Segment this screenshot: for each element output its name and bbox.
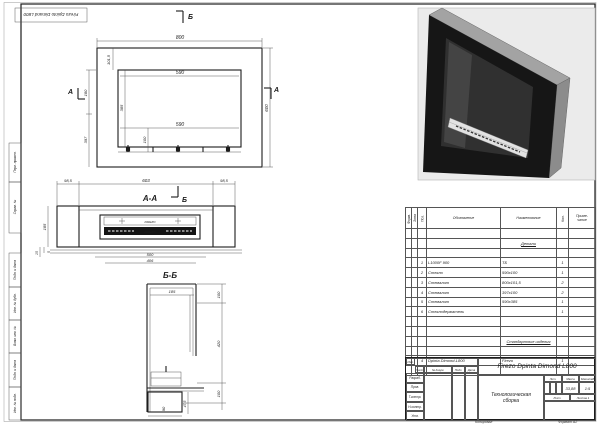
spec-header-note: Приме- чание [569, 208, 596, 229]
dim-406: 406 [147, 258, 154, 263]
format-label: Формат А2 [558, 420, 577, 424]
doc-title: Firezo Dpinta Dimond L800 [478, 358, 596, 375]
margin-label: Инв. № подл. [13, 393, 17, 413]
dim-15: 15 [35, 251, 39, 255]
spec-header-name: Наименование [501, 208, 557, 229]
rev-header-doc: № докум. [424, 366, 452, 373]
spec-table: Форм. Зона Поз. Обозначение Наименование… [405, 207, 596, 376]
dim-385: 385 [119, 104, 124, 111]
scale-value: 1:5 [579, 382, 596, 394]
margin-label: Справ. № [13, 199, 17, 214]
rev-header-sign: Подп. [452, 366, 465, 373]
section-bb: Б-Б 185 100 420 100 90 47,5 [147, 271, 226, 416]
sheets-cell: Листов 1 [570, 394, 596, 401]
section-aa-label: А-А [142, 194, 157, 203]
dim-397: 397 [83, 136, 88, 143]
spec-header-designation: Обозначение [427, 208, 501, 229]
spec-row: 1L1000F 900ТБ1 [406, 258, 596, 268]
dim-98-5-left: 98,5 [64, 178, 73, 183]
dim-180: 180 [83, 89, 88, 96]
margin-boxes: Перв. примен. Справ. № Подп. и дата Инв.… [9, 143, 21, 420]
scale-label: Масштаб [579, 375, 596, 382]
front-view: 800 101,5 590 590 600 180 397 385 100 Б … [67, 11, 279, 167]
rev-header-date: Дата [465, 366, 478, 373]
role-tkontr: Т.контр. [406, 392, 424, 402]
spec-section-details: Детали [406, 238, 596, 248]
section-aa-mark-b: Б [182, 197, 187, 204]
dim-185-aa: 185 [42, 223, 47, 230]
mass-label: Масса [562, 375, 579, 382]
dim-420: 420 [216, 340, 221, 347]
lit-label: Лит. [544, 375, 562, 382]
dim-600: 600 [264, 104, 269, 112]
dim-98-5-right: 98,5 [220, 178, 229, 183]
title-block: Изм. Лист № докум. Подп. Дата Разраб. Пр… [405, 357, 595, 420]
spec-header-format: Форм. [406, 208, 412, 229]
dim-185-bb: 185 [169, 289, 176, 294]
spec-row: 5Стемалит590х3851 [406, 297, 596, 307]
dim-100-top: 100 [216, 291, 221, 298]
spec-section-standard-label: Стандартные изделия [501, 336, 557, 346]
dim-800: 800 [176, 35, 185, 41]
section-mark-b: Б [188, 14, 193, 21]
spec-header-qty: Кол. [557, 208, 569, 229]
section-bb-label: Б-Б [163, 271, 177, 280]
role-nkontr: Н.контр. [406, 402, 424, 412]
spec-row: 6Стеклодержатель1 [406, 307, 596, 317]
spec-row: 2Стекло590х1001 [406, 268, 596, 278]
doc-subtitle: Технологическая сборка [478, 375, 544, 421]
section-mark-a-right: А [273, 87, 279, 94]
copied-label: Копировал [475, 420, 492, 424]
anchor-bolts [127, 145, 230, 152]
dim-101-5: 101,5 [106, 54, 111, 65]
margin-label: Подп. и дата [13, 260, 17, 280]
dim-500: 500 [147, 252, 154, 257]
drawing-sheet: Firezo Dpinto Dimand L800 Перв. примен. … [0, 0, 600, 424]
rev-date-column [465, 373, 478, 421]
spec-header-row: Форм. Зона Поз. Обозначение Наименование… [406, 208, 596, 229]
rev-doc-column [424, 373, 452, 421]
dim-90: 90 [161, 406, 166, 411]
role-utv: Утв. [406, 411, 424, 421]
rev-header-izm: Изм. [406, 358, 415, 365]
burner-brand-top: FIREZO [145, 220, 157, 224]
dim-5: 5 [47, 251, 51, 253]
role-prov: Пров. [406, 383, 424, 393]
section-mark-a-left: А [67, 89, 73, 96]
margin-label: Инв. № дубл. [13, 293, 17, 313]
burner-brand-strip: FIREZO [145, 230, 157, 234]
stamp-text: Firezo Dpinto Dimand L800 [23, 12, 78, 17]
org-cell [544, 401, 596, 421]
mass-value: 33,88 [562, 382, 579, 394]
dim-100: 100 [142, 136, 147, 143]
spec-section-standard: Стандартные изделия [406, 336, 596, 346]
spec-header-pos: Поз. [418, 208, 427, 229]
top-stamp: Firezo Dpinto Dimand L800 [15, 8, 87, 22]
spec-row: 3Стемалит800х101,52 [406, 277, 596, 287]
role-razrab: Разраб. [406, 373, 424, 383]
dim-603: 603 [142, 178, 150, 183]
rev-header-list: Лист [415, 366, 424, 373]
spec-row: 4Стемалит397х1002 [406, 287, 596, 297]
rev-sign-column [452, 373, 465, 421]
margin-label: Подп. и дата [13, 360, 17, 380]
dim-47-5: 47,5 [183, 401, 187, 408]
spec-section-details-label: Детали [501, 238, 557, 248]
dim-590-bottom: 590 [176, 122, 185, 128]
revision-blank-row [406, 358, 478, 366]
spec-header-zone: Зона [412, 208, 418, 229]
dim-100-bottom: 100 [216, 390, 221, 397]
margin-label: Перв. примен. [13, 151, 17, 172]
render-3d [418, 8, 595, 180]
margin-label: Взам. инв. № [13, 326, 17, 346]
section-aa: А-А Б FIREZO FIREZO 98,5 603 98,5 185 5 … [35, 178, 242, 263]
dim-590-top: 590 [176, 70, 185, 76]
sheet-label: Лист [544, 394, 570, 401]
